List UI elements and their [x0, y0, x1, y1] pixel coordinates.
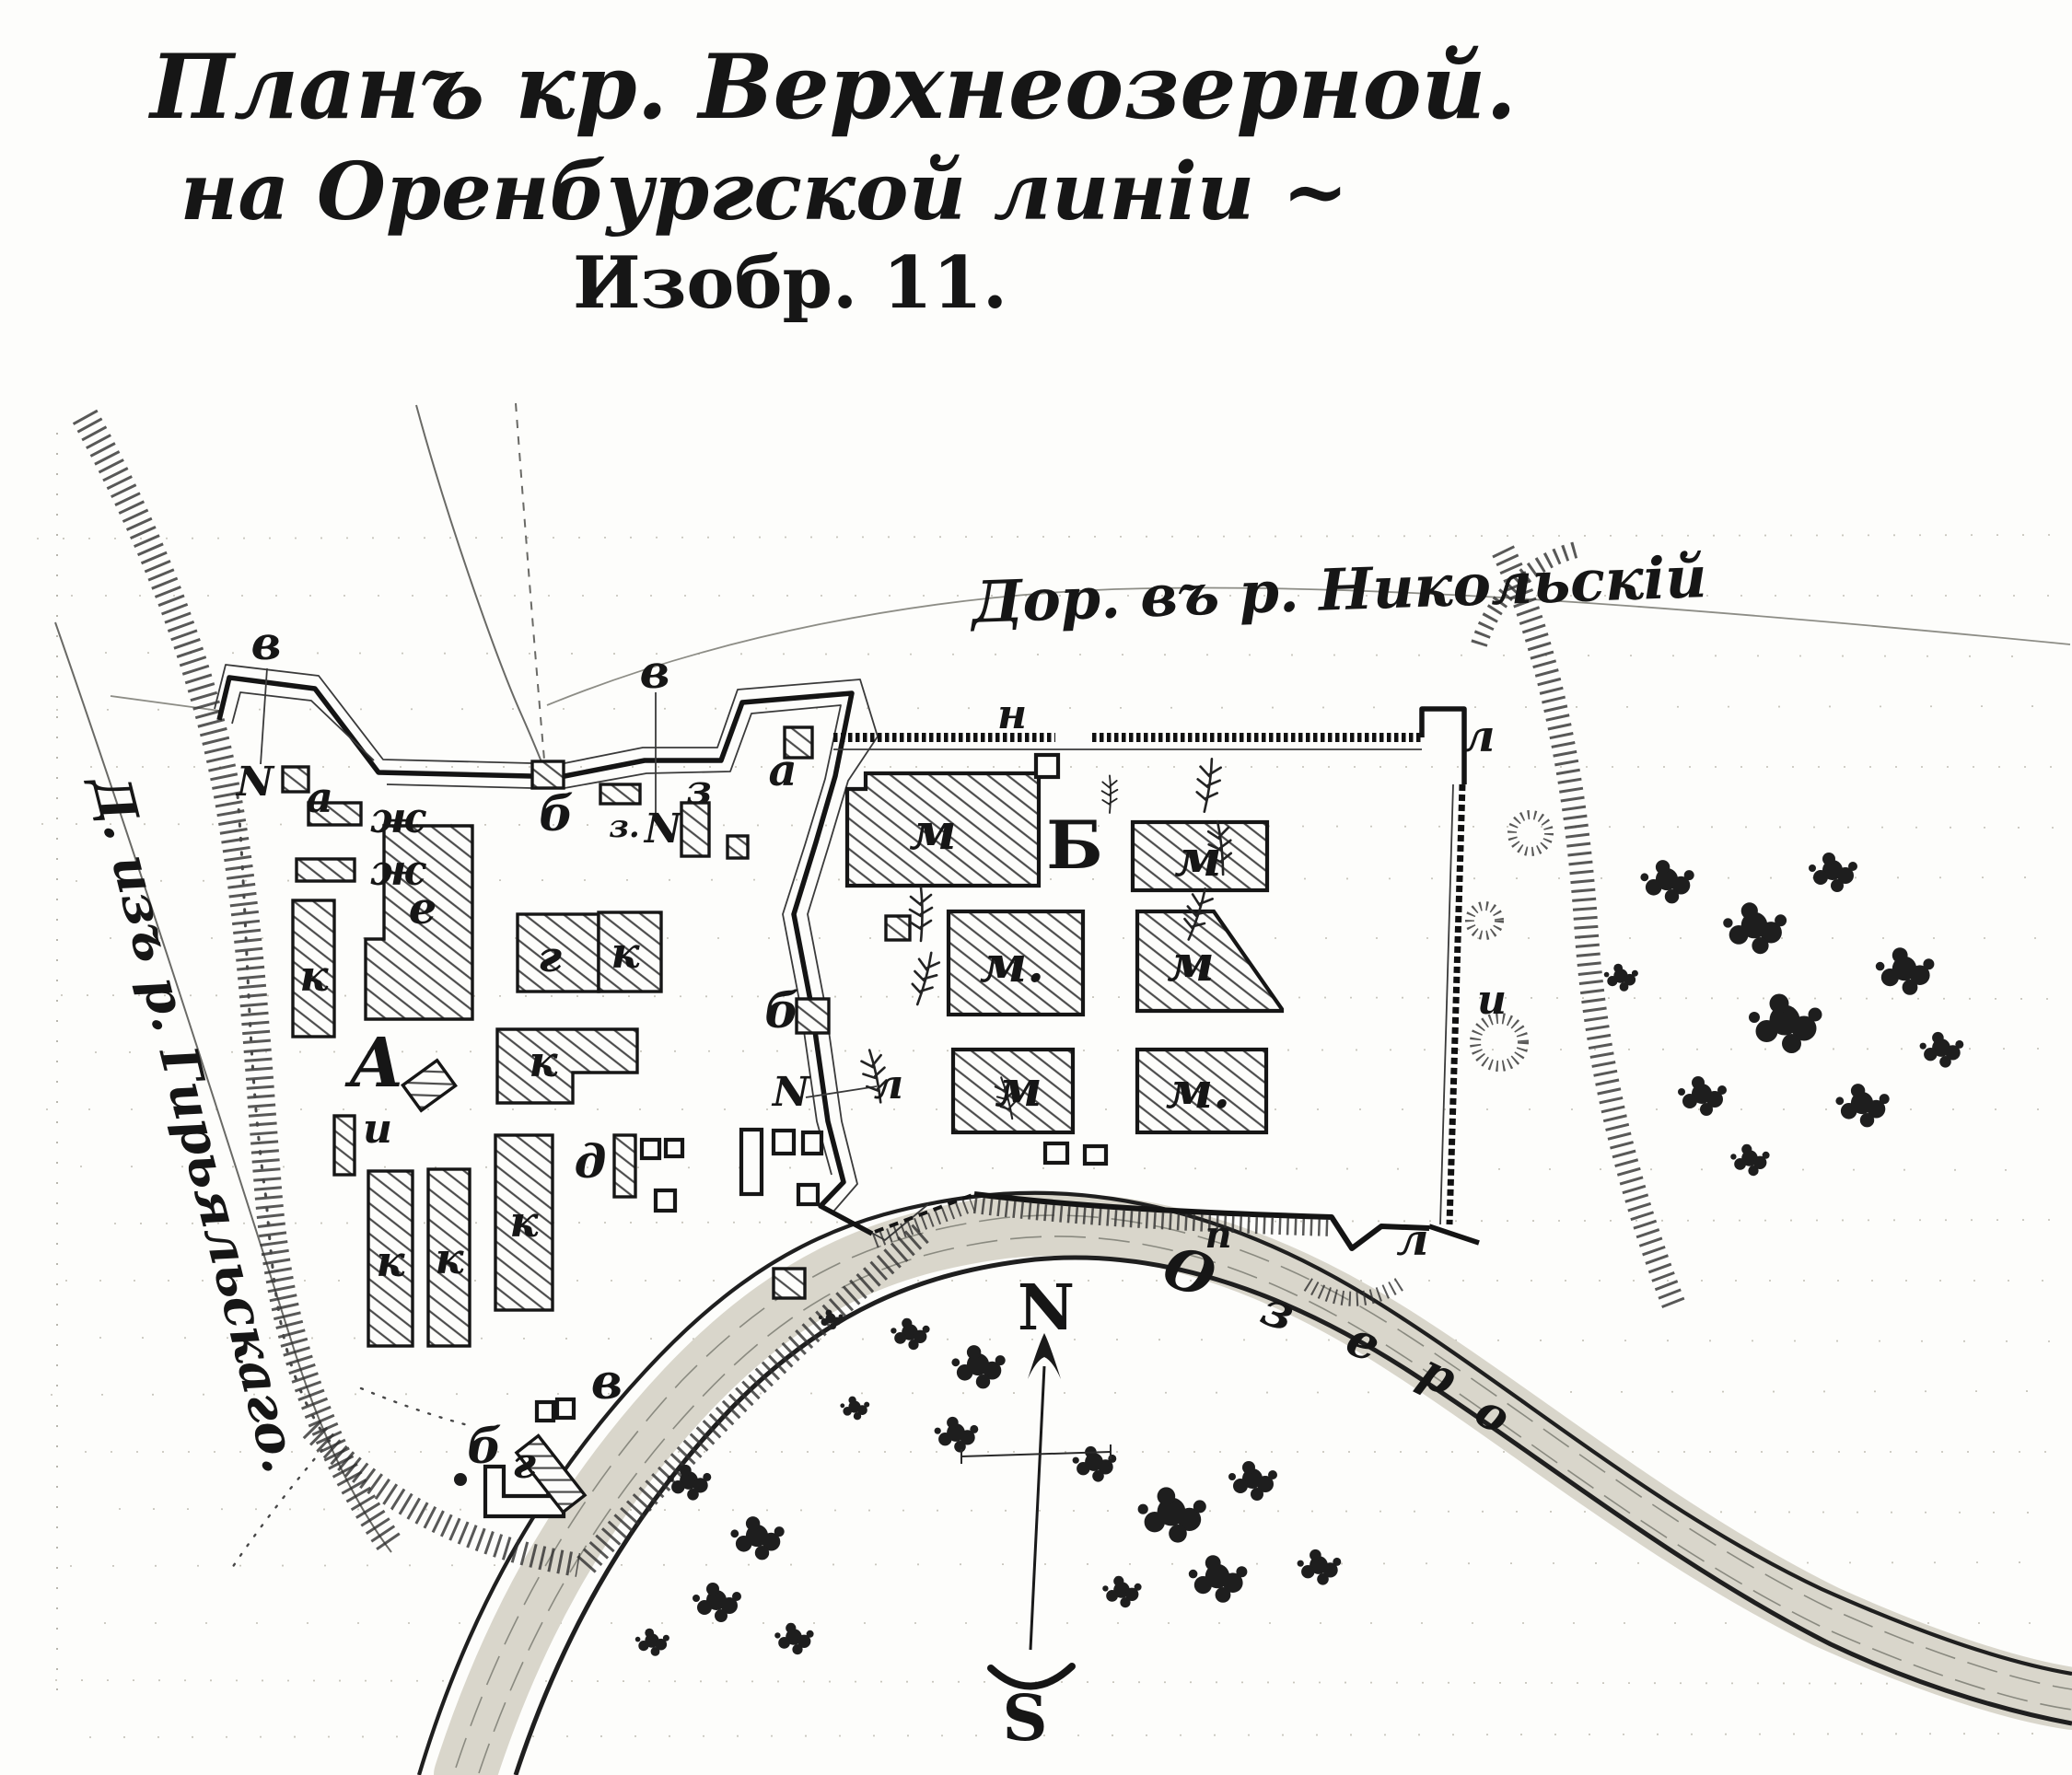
tree-cluster	[1604, 964, 1638, 992]
tree-cluster	[1723, 902, 1787, 954]
road-label-giryalsky: Д. изъ р. Гирьяльскаго.	[79, 767, 312, 1479]
road-label-nikolsky: Дор. въ р. Никольскій	[968, 543, 1708, 636]
map-label-house-k-2: к	[529, 1037, 558, 1086]
shed	[803, 1132, 821, 1154]
map-label-barrack-k-3: к	[376, 1236, 405, 1286]
map-label-barrack-k-4: к	[435, 1234, 464, 1283]
tree-cluster	[1640, 860, 1694, 903]
bush-cluster	[951, 1345, 1005, 1388]
shed	[1045, 1143, 1067, 1163]
map-title-line3: Изобр. 11.	[573, 241, 1007, 325]
tree-cluster	[1876, 947, 1935, 995]
map-label-mark-n-left: N	[235, 759, 275, 806]
tree-cluster	[1730, 1144, 1769, 1176]
fortress-plan-map: N S Планъ кр. Верхнеозерной. на Оренбург…	[0, 0, 2072, 1775]
map-label-house-k-pair: к	[611, 928, 640, 978]
building-d-bar	[614, 1135, 635, 1197]
gate-north	[532, 761, 564, 788]
compass-north-label: N	[1018, 1271, 1075, 1345]
map-label-fortress-b-letter: Б	[1046, 806, 1103, 884]
building-i	[334, 1116, 355, 1175]
map-label-mark-a-left: а	[306, 772, 333, 822]
building-zh2	[297, 859, 355, 881]
paper-dot-row	[105, 653, 2054, 656]
tree-cluster	[1298, 1549, 1342, 1585]
building-tilted	[402, 1061, 455, 1111]
map-label-mark-l-ne: л	[1462, 711, 1495, 762]
tree-cluster	[1809, 853, 1857, 892]
paper-dot-row	[56, 706, 2054, 710]
shed	[656, 1190, 675, 1211]
map-label-mark-l-east: л	[874, 1062, 903, 1108]
map-label-gate-b-north: б	[539, 786, 574, 842]
map-label-house-m-4: м	[1167, 934, 1214, 992]
gate-east	[797, 999, 829, 1033]
map-label-mark-z-2: з	[686, 767, 712, 814]
fir-tree	[910, 887, 932, 941]
map-label-mark-i-east: и	[1477, 977, 1507, 1024]
vegetation	[635, 758, 1964, 1656]
shed	[798, 1185, 818, 1204]
shed	[557, 1399, 574, 1418]
map-label-gate-v-north: в	[640, 644, 670, 699]
shed	[741, 1130, 762, 1194]
bush-cluster	[935, 1417, 979, 1453]
map-label-mark-d: д	[575, 1134, 607, 1189]
paper-dot-row	[119, 1509, 2054, 1513]
map-label-gate-v-left: в	[251, 616, 282, 670]
map-label-mark-g-sw: г	[512, 1438, 536, 1488]
tree-cluster	[1228, 1461, 1277, 1501]
shed	[642, 1140, 659, 1158]
gate-square	[1036, 755, 1058, 777]
paper-dot-row	[37, 535, 2054, 539]
map-label-barrack-zh-1: ж	[370, 793, 426, 842]
tree-cluster	[1138, 1487, 1206, 1542]
well-dot	[454, 1473, 467, 1486]
map-label-mark-v-sw: в	[591, 1354, 623, 1410]
shed	[774, 1131, 794, 1154]
tree-cluster	[1835, 1084, 1889, 1127]
building-z-small	[600, 784, 640, 804]
map-label-mark-z-small: з.	[609, 808, 640, 845]
fir-tree	[1193, 758, 1223, 814]
map-label-gate-b-east: б	[764, 983, 799, 1039]
fir-tree	[907, 950, 942, 1007]
tree-cluster	[730, 1516, 784, 1560]
map-label-house-m-6: м.	[1166, 1061, 1230, 1120]
shed	[666, 1140, 682, 1156]
tree-cluster	[774, 1623, 813, 1654]
map-label-house-k-1: к	[299, 951, 329, 1001]
map-title-line2: на Оренбургской линіи ~	[180, 145, 1349, 238]
tree-cluster	[1678, 1076, 1727, 1116]
map-label-house-m-5: м	[995, 1059, 1042, 1118]
map-label-house-m-2: м	[1174, 829, 1221, 887]
tree-cluster	[635, 1629, 669, 1656]
map-label-mark-n-palisade: н	[997, 691, 1027, 738]
map-label-mark-l-se: л	[1396, 1214, 1428, 1266]
map-title-line1: Планъ кр. Верхнеозерной.	[147, 35, 1517, 139]
left-river-bank	[57, 416, 390, 1694]
map-label-house-m-3: м.	[980, 934, 1044, 993]
mark-n-east-line	[806, 1086, 877, 1097]
tree-cluster	[1189, 1555, 1248, 1603]
paper-dot-row	[89, 1734, 2054, 1737]
tree-cluster	[1920, 1032, 1964, 1068]
tree-cluster	[1749, 994, 1822, 1054]
shed-hatched	[774, 1269, 805, 1298]
east-ravines	[1470, 549, 1674, 1305]
map-label-fortress-a-letter: А	[344, 1024, 404, 1103]
fir-tree	[1102, 775, 1118, 813]
map-page: N S Планъ кр. Верхнеозерной. на Оренбург…	[0, 0, 2072, 1775]
map-label-bastion-a: а	[768, 745, 797, 796]
map-label-house-m-1: м	[909, 802, 956, 861]
tree-cluster	[1102, 1576, 1141, 1607]
map-label-mark-b-sw: б	[467, 1419, 502, 1475]
shed-hatched	[886, 916, 910, 940]
map-label-house-g: г	[538, 932, 562, 981]
paper-dot-row	[51, 1391, 2054, 1395]
map-label-mark-n-east: N	[771, 1069, 811, 1116]
map-label-house-e: е	[409, 883, 437, 934]
tree-cluster	[693, 1583, 741, 1622]
map-label-barrack-k-5: к	[509, 1197, 539, 1247]
bush-cluster	[840, 1397, 869, 1421]
shed	[537, 1402, 553, 1421]
bush-cluster	[890, 1318, 929, 1350]
compass-south-label: S	[1002, 1682, 1047, 1756]
map-label-mark-n-mid: N	[643, 806, 683, 853]
shed	[1085, 1146, 1106, 1164]
shed-hatched	[728, 836, 748, 858]
compass-rose: N S	[961, 1271, 1111, 1756]
shed-hatched	[283, 767, 308, 792]
building-k2	[497, 1029, 637, 1103]
map-label-house-i: и	[363, 1106, 392, 1153]
